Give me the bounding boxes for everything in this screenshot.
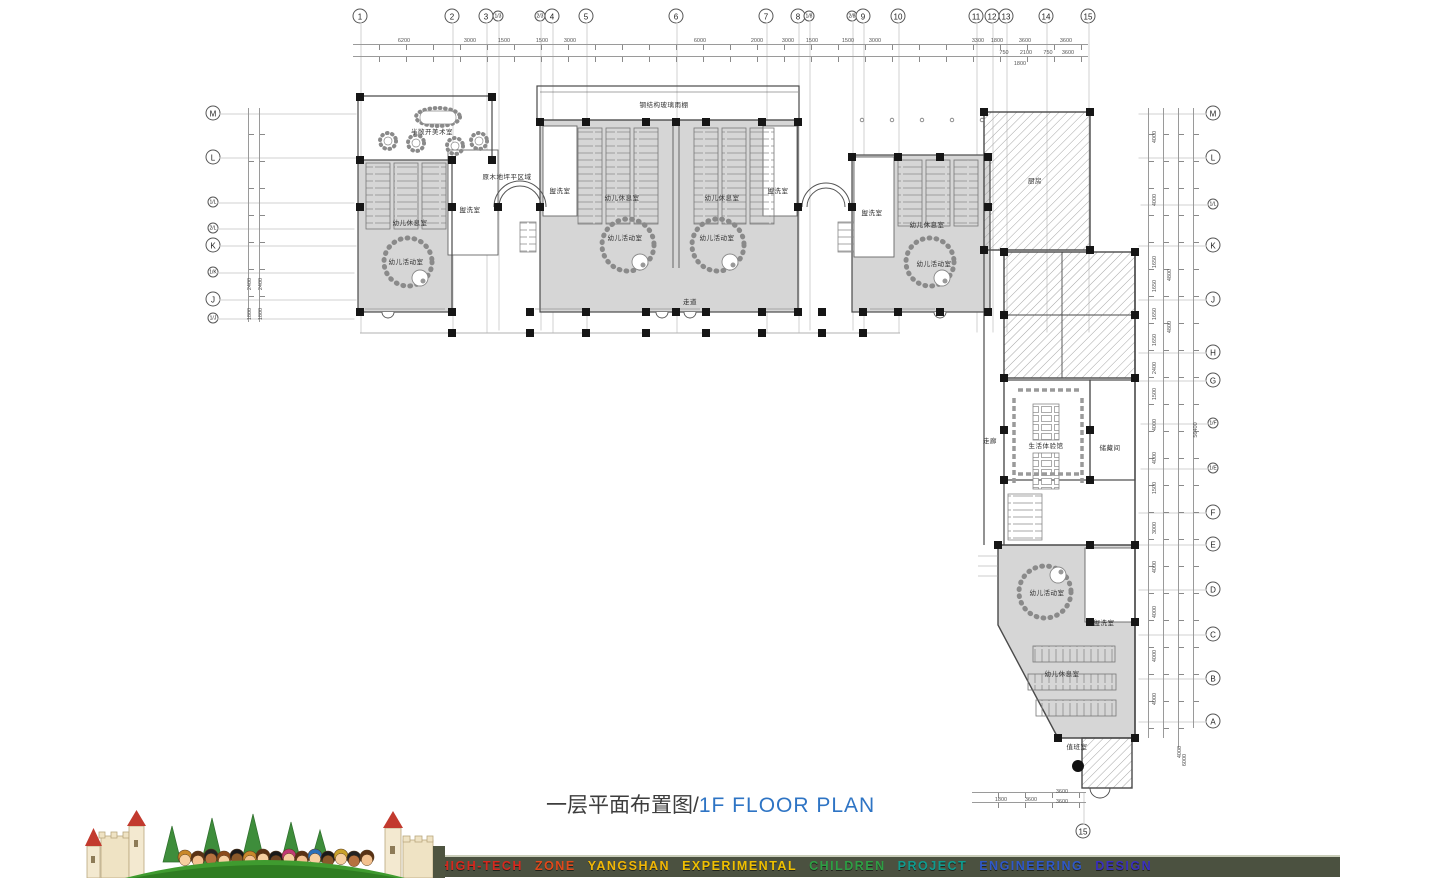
column-markers	[860, 118, 984, 122]
castle-left-icon	[85, 810, 146, 878]
green-hill-front-icon	[133, 865, 397, 878]
sheet-title: 一层平面布置图/1F FLOOR PLAN	[546, 789, 875, 819]
footer-word: ENGINEERING	[979, 859, 1083, 873]
drawing-sheet: 1231/32/3456781/82/89101112131415 ML1/L2…	[0, 0, 1440, 880]
castle-right-icon	[383, 811, 445, 878]
footer-word: EXPERIMENTAL	[682, 859, 797, 873]
footer-banner-text: HIGH-TECHZONEYANGSHANEXPERIMENTALCHILDRE…	[440, 855, 1152, 877]
footer-word: ZONE	[535, 859, 576, 873]
art-room-tables	[380, 108, 487, 154]
sheet-title-zh: 一层平面布置图/	[546, 794, 699, 817]
footer-word: PROJECT	[898, 859, 968, 873]
life-hall-furniture	[1014, 390, 1082, 489]
footer-word: CHILDREN	[809, 859, 886, 873]
footer-word: DESIGN	[1095, 859, 1152, 873]
floor-plan-drawing	[0, 0, 1440, 880]
footer-word: HIGH-TECH	[440, 859, 523, 873]
sheet-title-en: 1F FLOOR PLAN	[699, 794, 875, 817]
children-castle-illustration	[85, 806, 445, 878]
footer-word: YANGSHAN	[588, 859, 670, 873]
